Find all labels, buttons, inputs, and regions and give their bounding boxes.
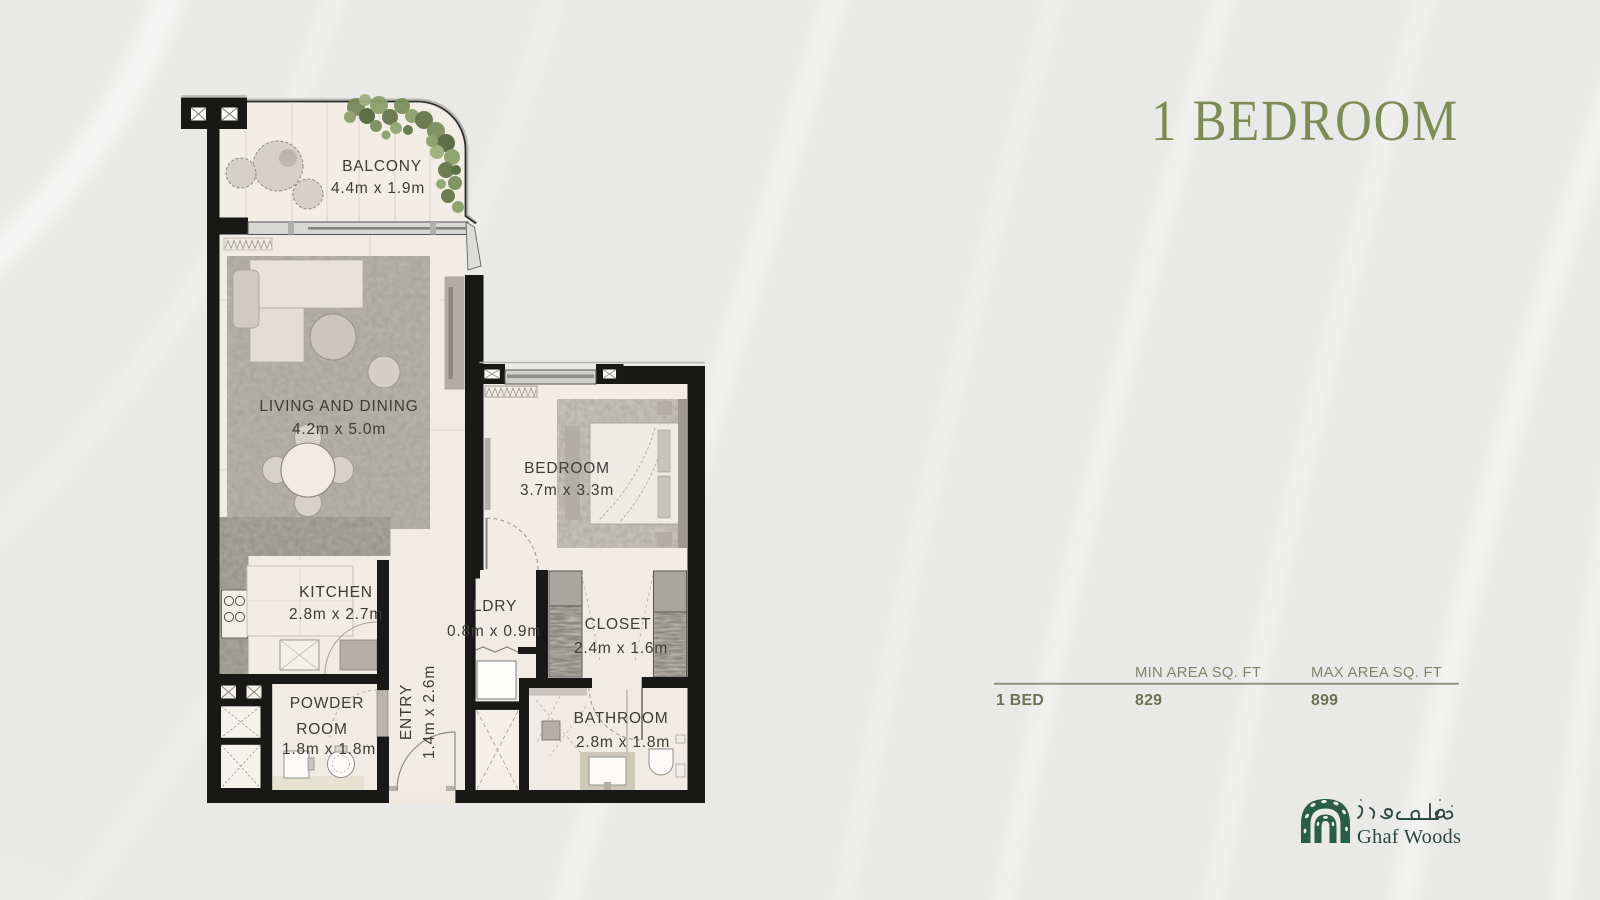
svg-text:Ghaf Woods: Ghaf Woods (1357, 826, 1461, 848)
